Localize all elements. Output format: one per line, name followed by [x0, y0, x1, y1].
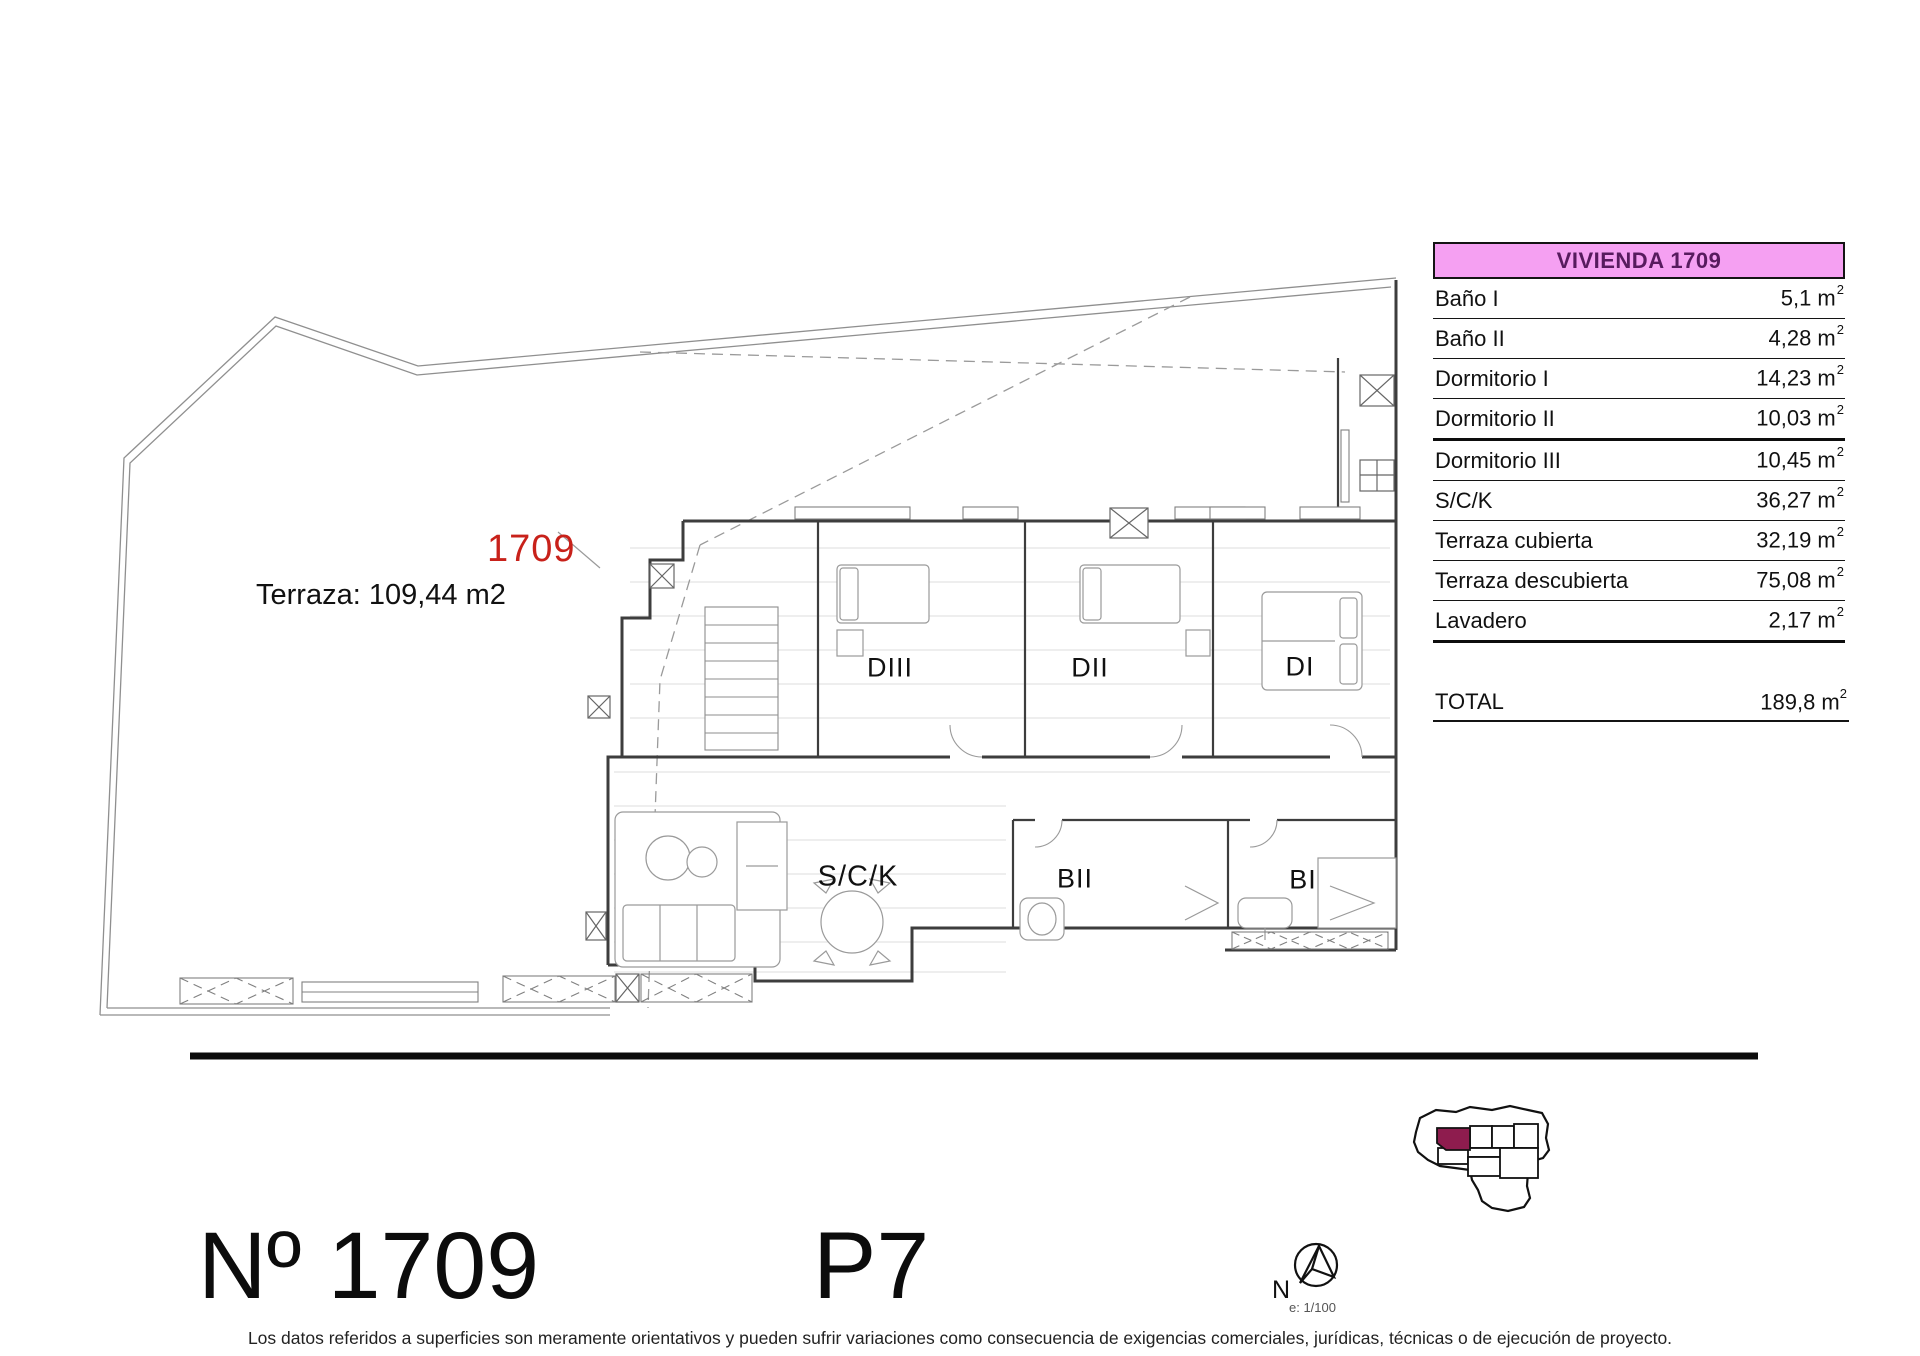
table-row: Lavadero 2,17 m2 [1433, 601, 1845, 643]
planter-hatched [1232, 932, 1388, 949]
row-label: Dormitorio II [1435, 406, 1555, 432]
row-value: 14,23 [1756, 366, 1811, 391]
unit-id-label: 1709 [487, 528, 576, 571]
sheet-floor-code: P7 [813, 1212, 929, 1321]
room-label-dormitorio-ii: DII [1071, 653, 1109, 684]
table-row: Baño II 4,28 m2 [1433, 319, 1845, 359]
footer-disclaimer: Los datos referidos a superficies son me… [0, 1328, 1920, 1349]
stairs [705, 607, 778, 750]
terrace-area-note: Terraza: 109,44 m2 [256, 579, 506, 612]
room-label-sck: S/C/K [818, 861, 899, 894]
column-x-box [616, 974, 639, 1002]
room-label-bano-ii: BII [1057, 864, 1093, 895]
row-label: Baño I [1435, 286, 1499, 312]
bed-dii [1080, 565, 1180, 623]
row-value: 4,28 [1768, 326, 1811, 351]
total-label: TOTAL [1435, 689, 1504, 715]
windows [795, 507, 1360, 519]
compass-scale-label: e: 1/100 [1289, 1300, 1336, 1315]
row-value: 2,17 [1768, 608, 1811, 633]
room-label-dormitorio-i: DI [1286, 652, 1315, 683]
wardrobe-bi [1318, 858, 1396, 928]
column-x-box [588, 696, 610, 718]
row-value: 5,1 [1781, 286, 1812, 311]
planter-hatched [641, 974, 752, 1002]
bed-diii [837, 565, 929, 623]
door-arcs [950, 725, 1362, 847]
row-label: Terraza descubierta [1435, 568, 1628, 594]
nightstand [837, 630, 863, 656]
floor-plan-drawing [0, 0, 1920, 1356]
row-label: Lavadero [1435, 608, 1527, 634]
sofa [623, 905, 735, 961]
total-value: 189,8 [1760, 689, 1815, 714]
row-value: 75,08 [1756, 568, 1811, 593]
column-x-box [1360, 375, 1394, 406]
planters [180, 932, 1388, 1004]
table-row: Terraza cubierta 32,19 m2 [1433, 521, 1845, 561]
table-row: S/C/K 36,27 m2 [1433, 481, 1845, 521]
row-label: Dormitorio III [1435, 448, 1561, 474]
room-label-bano-i: BI [1289, 865, 1317, 896]
table-row: Dormitorio II 10,03 m2 [1433, 399, 1845, 441]
row-value: 10,03 [1756, 406, 1811, 431]
table-row: Dormitorio III 10,45 m2 [1433, 441, 1845, 481]
toilet-bii [1020, 898, 1064, 940]
table-row: Baño I 5,1 m2 [1433, 279, 1845, 319]
area-table: VIVIENDA 1709 Baño I 5,1 m2 Baño II 4,28… [1433, 242, 1845, 643]
column-x-box [650, 564, 674, 588]
annex-door-leaf [1341, 430, 1349, 502]
row-label: S/C/K [1435, 488, 1492, 514]
area-table-header: VIVIENDA 1709 [1433, 242, 1845, 279]
table-row: Dormitorio I 14,23 m2 [1433, 359, 1845, 399]
planter-hatched [180, 978, 293, 1004]
table-total-row: TOTAL 189,8 m2 [1433, 684, 1849, 722]
compass-north-label: N [1272, 1276, 1290, 1305]
column-x-box [1110, 508, 1148, 538]
shaft-plus-box [1360, 460, 1394, 491]
planter-plain [302, 982, 478, 1002]
row-label: Baño II [1435, 326, 1505, 352]
table-row: Terraza descubierta 75,08 m2 [1433, 561, 1845, 601]
row-value: 36,27 [1756, 488, 1811, 513]
sheet-unit-number: Nº 1709 [198, 1212, 539, 1321]
row-label: Terraza cubierta [1435, 528, 1593, 554]
shower-symbol-bii [1185, 886, 1218, 920]
row-value: 10,45 [1756, 448, 1811, 473]
sink-bi [1238, 898, 1292, 940]
nightstand [1186, 630, 1210, 656]
row-value: 32,19 [1756, 528, 1811, 553]
room-label-dormitorio-iii: DIII [867, 653, 913, 684]
floorplan-sheet: 1709 Terraza: 109,44 m2 DIII DII DI S/C/… [0, 0, 1920, 1356]
planter-hatched [503, 976, 615, 1002]
row-label: Dormitorio I [1435, 366, 1549, 392]
column-x-box [586, 912, 606, 940]
